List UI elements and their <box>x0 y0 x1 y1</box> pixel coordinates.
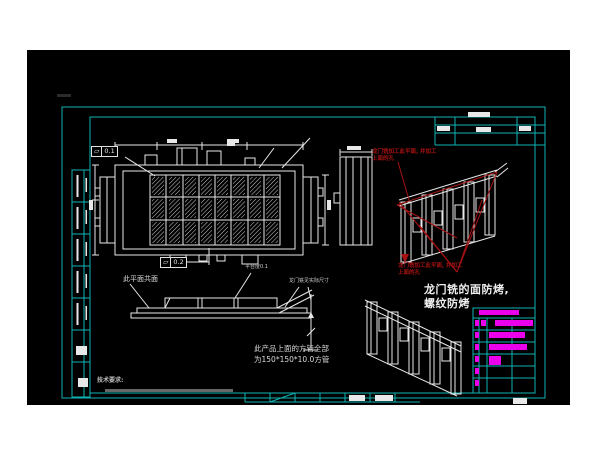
title-block-magenta-fields <box>475 310 533 386</box>
tolerance-value: 0.2 <box>170 258 183 267</box>
tech-req-blurred-line <box>105 389 233 392</box>
isometric-view-red <box>397 162 508 272</box>
tech-requirements-title: 技术要求: <box>97 377 123 384</box>
cad-screenshot-page: ▱ 0.1 ▱ 0.2 龙门铣加工此平面, 并加工 上面的孔 龙门铣加工此平面,… <box>0 0 600 450</box>
flatness-symbol-icon: ▱ <box>94 147 99 156</box>
weldment-front-elevation <box>130 273 317 350</box>
platform-flatness-label: 平台度0.1 <box>245 264 268 270</box>
anti-bake-note: 龙门铣的面防烤, 螺纹防烤 <box>424 283 509 312</box>
tolerance-value: 0.1 <box>101 147 114 156</box>
fcf2-leader <box>186 248 209 265</box>
flatness-symbol-icon: ▱ <box>163 258 168 267</box>
weldment-side-view <box>334 146 372 245</box>
stray-mark <box>57 94 71 97</box>
tolerance-frame-1: ▱ 0.1 <box>91 146 118 157</box>
isometric-view-lower <box>365 300 461 396</box>
actual-size-label: 龙门铣见实际尺寸 <box>289 278 329 284</box>
red-machining-note-bottom: 龙门铣加工此平面, 并加工 上面的孔 <box>398 263 463 276</box>
coplanar-note: 此平面共面 <box>123 275 158 283</box>
red-machining-note-top: 龙门铣加工此平面, 并加工 上面的孔 <box>372 149 437 162</box>
square-tube-note: 此产品上面的方管全部 为150*150*10.0方管 <box>254 344 329 365</box>
weldment-top-view <box>89 138 331 264</box>
tolerance-frame-2: ▱ 0.2 <box>160 257 187 268</box>
cad-black-canvas: ▱ 0.1 ▱ 0.2 龙门铣加工此平面, 并加工 上面的孔 龙门铣加工此平面,… <box>27 50 570 405</box>
